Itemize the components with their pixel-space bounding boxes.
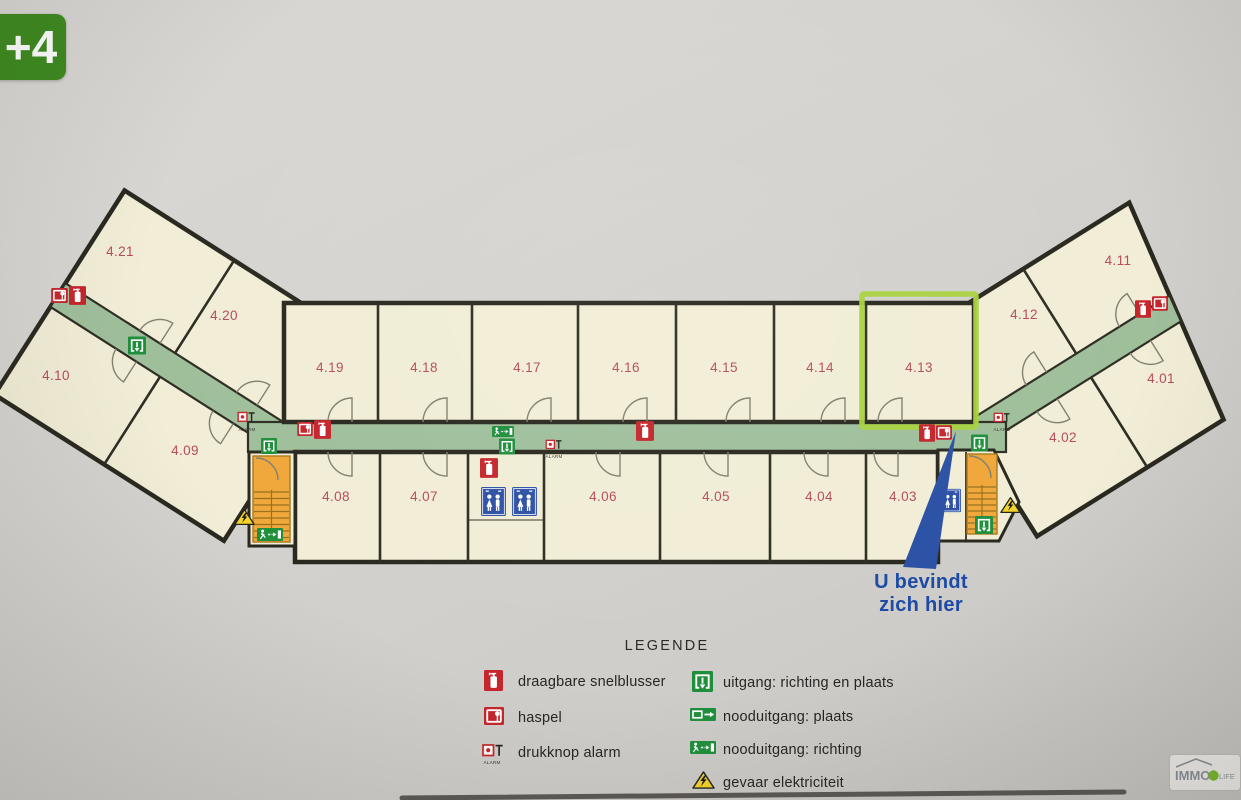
you-are-here-line1: U bevindt (874, 571, 968, 593)
room-label-4.13: 4.13 (905, 360, 933, 375)
alarm-caption: ALARM (483, 760, 500, 765)
fire-extinguisher-icon (484, 670, 503, 691)
logo-word-immo: IMMO (1175, 768, 1210, 783)
legend-label-uitgang: uitgang: richting en plaats (723, 675, 894, 691)
you-are-here-line2: zich hier (879, 594, 963, 616)
room-label-4.04: 4.04 (805, 489, 833, 504)
immo-life-logo: IMMO LIFE (1170, 755, 1240, 790)
room-label-4.06: 4.06 (589, 489, 617, 504)
room-label-4.11: 4.11 (1105, 253, 1132, 268)
room-label-4.20: 4.20 (210, 308, 238, 323)
toilets-icon (512, 487, 537, 516)
fire-extinguisher-icon (636, 421, 654, 441)
legend-label-nooduitgang-plaats: nooduitgang: plaats (723, 709, 853, 725)
fire-extinguisher-icon (1135, 300, 1151, 318)
alarm-button-icon (483, 745, 503, 756)
room-label-4.01: 4.01 (1147, 371, 1175, 386)
legend-label-nooduitgang-richting: nooduitgang: richting (723, 742, 862, 758)
legend-title: LEGENDE (625, 638, 710, 654)
legend-label-gevaar: gevaar elektriciteit (723, 775, 844, 791)
logo-word-life: LIFE (1219, 772, 1235, 781)
exit-direction-place-icon (499, 439, 515, 455)
room-label-4.10: 4.10 (42, 368, 70, 383)
alarm-caption: ALARM (238, 427, 255, 432)
room-label-4.03: 4.03 (889, 489, 917, 504)
alarm-caption: ALARM (545, 454, 562, 459)
room-label-4.05: 4.05 (702, 489, 730, 504)
emergency-exit-direction-icon (257, 528, 283, 541)
room-label-4.07: 4.07 (410, 489, 438, 504)
legend-label-drukknop: drukknop alarm (518, 745, 621, 761)
fire-extinguisher-icon (480, 458, 498, 478)
room-label-4.09: 4.09 (171, 443, 199, 458)
emergency-exit-direction-icon (690, 741, 716, 754)
hose-reel-icon (297, 422, 313, 436)
fire-extinguisher-icon (919, 424, 935, 442)
logo-dot-icon (1208, 770, 1218, 780)
room-label-4.14: 4.14 (806, 360, 834, 375)
evacuation-plan-photo: ALARM ALARM ALARM 4.21 4.20 4.10 4.09 (0, 0, 1241, 800)
fire-extinguisher-icon (314, 420, 331, 439)
toilets-icon (481, 487, 506, 516)
alarm-button-icon (238, 413, 254, 422)
logo-roof-icon (1176, 759, 1212, 767)
hose-reel-icon (1152, 296, 1168, 310)
central-bottom-rooms (295, 452, 938, 562)
alarm-caption: ALARM (993, 427, 1010, 432)
room-label-4.18: 4.18 (410, 360, 438, 375)
room-label-4.12: 4.12 (1010, 307, 1038, 322)
fire-extinguisher-icon (69, 286, 86, 305)
room-label-4.19: 4.19 (316, 360, 344, 375)
exit-direction-place-icon (971, 435, 988, 452)
room-label-4.08: 4.08 (322, 489, 350, 504)
alarm-button-icon (994, 413, 1009, 421)
emergency-exit-direction-icon (492, 426, 514, 437)
room-label-4.15: 4.15 (710, 360, 738, 375)
emergency-exit-direction-icon (261, 438, 277, 454)
emergency-exit-direction-icon (975, 516, 993, 534)
photo-edge (402, 792, 1124, 798)
floor-plan: ALARM ALARM ALARM 4.21 4.20 4.10 4.09 (0, 0, 1241, 800)
room-label-4.21: 4.21 (106, 244, 134, 259)
electricity-danger-icon (693, 772, 714, 788)
emergency-exit-place-icon (690, 708, 716, 721)
hose-reel-icon (51, 288, 68, 303)
room-label-4.17: 4.17 (513, 360, 541, 375)
legend: LEGENDE draagbare snelblusser haspel ALA… (483, 638, 894, 791)
exit-direction-place-icon (128, 337, 146, 355)
floor-badge: +4 (0, 14, 66, 80)
room-label-4.02: 4.02 (1049, 430, 1077, 445)
alarm-button-icon (546, 440, 561, 448)
hose-reel-icon (484, 707, 504, 725)
exit-direction-place-icon (692, 671, 713, 692)
hose-reel-icon (936, 425, 952, 439)
legend-label-haspel: haspel (518, 710, 562, 726)
legend-label-snelblusser: draagbare snelblusser (518, 674, 666, 690)
room-label-4.16: 4.16 (612, 360, 640, 375)
